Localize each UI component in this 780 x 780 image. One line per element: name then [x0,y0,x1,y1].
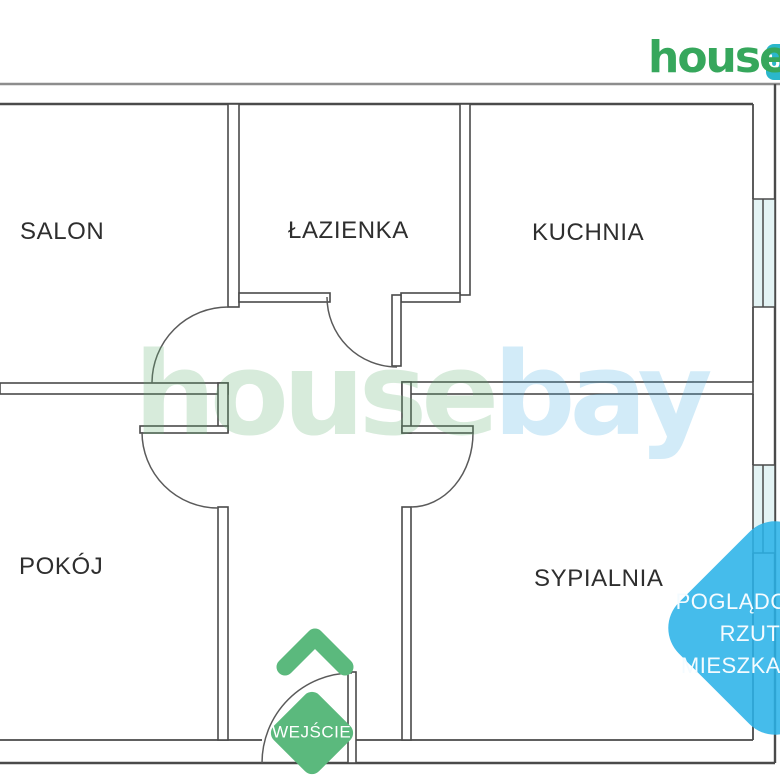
entrance-arrow-icon [285,637,345,667]
wall-pokoj-hall [218,507,228,740]
wall-kuchnia-sypialnia [402,382,753,394]
wall-lazienka-bottom-left [239,293,330,302]
door-leaf-pokoj [140,426,228,433]
room-label-pokoj: POKÓJ [19,553,103,581]
wall-salon-lazienka [228,104,239,307]
room-label-lazienka: ŁAZIENKA [288,217,409,245]
wall-salon-pokoj [0,383,228,394]
door-arc-pokoj [142,432,218,508]
wall-lazienka-bottom-right [401,293,460,302]
wall-lazienka-kuchnia [460,104,470,295]
door-arc-salon [152,307,228,383]
room-label-salon: SALON [20,218,104,246]
corner-note-line-2: RZUT [620,618,780,650]
door-arc-sypialnia [411,433,473,507]
brand-logo: house [648,36,780,80]
brand-logo-text: house [648,32,780,83]
corner-note-line-1: POGLĄDOWY [620,586,780,618]
entrance-badge-label: WEJŚCIE [272,723,351,743]
corner-note-line-3: MIESZKANIA [620,650,780,682]
wall-sypialnia-hall [402,507,411,740]
windows [753,199,775,553]
door-leaf-sypialnia [402,426,473,433]
corner-note-text: POGLĄDOWY RZUT MIESZKANIA [620,586,780,682]
wall-pier-left-vertical [218,383,228,432]
kitchen-window [753,199,775,307]
room-label-kuchnia: KUCHNIA [532,219,644,247]
floorplan-canvas: housebay SALON ŁAZIENKA KUCHNIA POKÓJ SY… [0,0,780,780]
door-leaf-entrance [348,672,356,763]
door-leaf-lazienka [392,295,401,366]
door-arc-lazienka [327,297,397,367]
